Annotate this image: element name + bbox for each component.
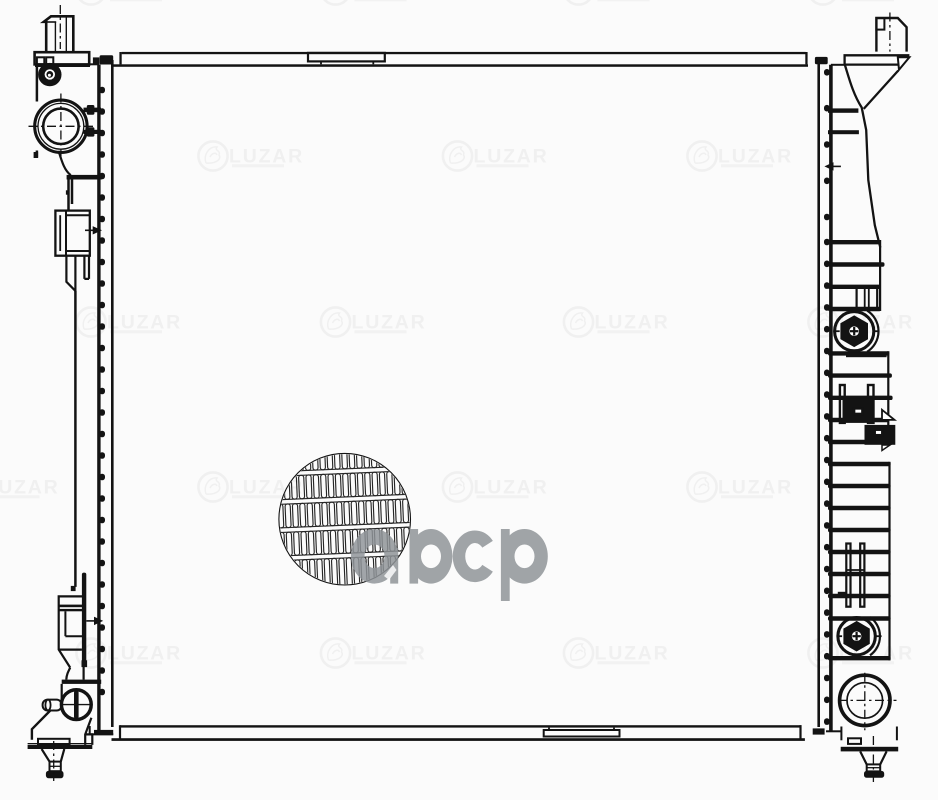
svg-text:LUZAR: LUZAR bbox=[229, 145, 304, 167]
svg-text:LUZAR: LUZAR bbox=[718, 145, 793, 167]
svg-text:LUZAR: LUZAR bbox=[107, 642, 182, 664]
svg-text:LUZAR: LUZAR bbox=[595, 311, 670, 333]
svg-text:LUZAR: LUZAR bbox=[474, 476, 549, 498]
svg-text:LUZAR: LUZAR bbox=[595, 642, 670, 664]
svg-text:LUZAR: LUZAR bbox=[107, 311, 182, 333]
svg-text:LUZAR: LUZAR bbox=[352, 642, 427, 664]
svg-text:LUZAR: LUZAR bbox=[352, 311, 427, 333]
svg-text:LUZAR: LUZAR bbox=[474, 145, 549, 167]
svg-text:LUZAR: LUZAR bbox=[0, 476, 60, 498]
svg-text:LUZAR: LUZAR bbox=[718, 476, 793, 498]
